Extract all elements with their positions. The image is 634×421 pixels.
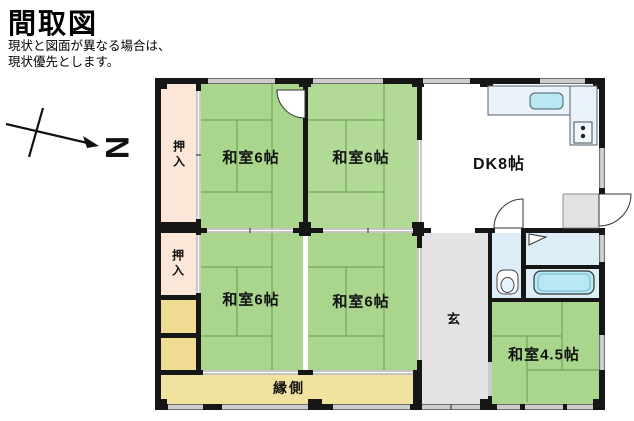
disclaimer-line-1: 現状と図面が異なる場合は、 (8, 38, 171, 54)
label-oshiire-upper: 押入 (171, 140, 188, 170)
label-washitsu-sw: 和室6帖 (222, 289, 279, 310)
disclaimer-line-2: 現状優先とします。 (8, 54, 171, 70)
label-genkan: 玄 (447, 309, 461, 328)
disclaimer-text: 現状と図面が異なる場合は、 現状優先とします。 (8, 38, 171, 71)
label-washitsu-nw: 和室6帖 (222, 147, 279, 168)
north-arrow-line (6, 124, 92, 144)
north-arrow: N (2, 98, 152, 180)
room-labels: 押入 押入 和室6帖 和室6帖 DK8帖 和室6帖 和室6帖 玄 和室4.5帖 … (155, 78, 605, 410)
label-engawa: 縁側 (273, 378, 305, 398)
label-washitsu-ne: 和室6帖 (332, 147, 389, 168)
north-arrow-head (83, 136, 99, 148)
label-dk: DK8帖 (473, 150, 525, 174)
label-washitsu-s: 和室6帖 (332, 291, 389, 312)
north-label: N (99, 136, 135, 159)
label-washitsu-se: 和室4.5帖 (508, 344, 580, 365)
page-title: 間取図 (8, 2, 98, 42)
label-oshiire-lower: 押入 (170, 249, 187, 279)
floorplan-page: { "header": { "title": "間取図", "disclaime… (0, 0, 634, 421)
floorplan: 押入 押入 和室6帖 和室6帖 DK8帖 和室6帖 和室6帖 玄 和室4.5帖 … (155, 78, 605, 410)
